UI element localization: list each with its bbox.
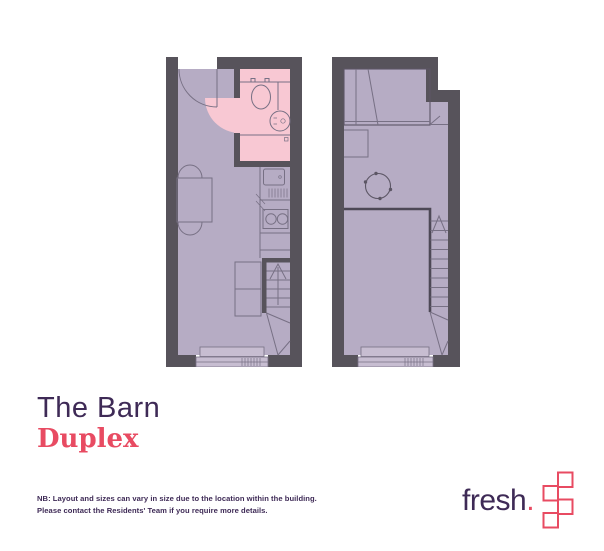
fresh-logo-text: fresh. xyxy=(462,484,534,518)
upper-floor-room xyxy=(344,69,448,355)
disclaimer: NB: Layout and sizes can vary in size du… xyxy=(37,493,317,516)
ground-floor-plan xyxy=(166,57,302,367)
window xyxy=(196,347,268,367)
fresh-logo-icon xyxy=(542,471,575,531)
fresh-logo-word: fresh xyxy=(462,484,526,517)
radiator xyxy=(405,358,423,366)
unit-type: Duplex xyxy=(37,424,139,454)
disclaimer-line-2: Please contact the Residents' Team if yo… xyxy=(37,505,317,517)
entrance-opening xyxy=(178,57,217,69)
property-name: The Barn xyxy=(37,392,160,425)
drainer xyxy=(269,189,287,198)
fresh-logo-dot: . xyxy=(526,484,534,517)
fresh-logo: fresh. xyxy=(462,471,575,531)
window-sill xyxy=(361,347,429,357)
radiator xyxy=(242,358,260,366)
floorplan-sheet: The Barn Duplex NB: Layout and sizes can… xyxy=(0,0,604,551)
window-sill xyxy=(200,347,264,357)
disclaimer-line-1: NB: Layout and sizes can vary in size du… xyxy=(37,493,317,505)
window xyxy=(358,347,433,367)
upper-floor-plan xyxy=(332,57,460,367)
